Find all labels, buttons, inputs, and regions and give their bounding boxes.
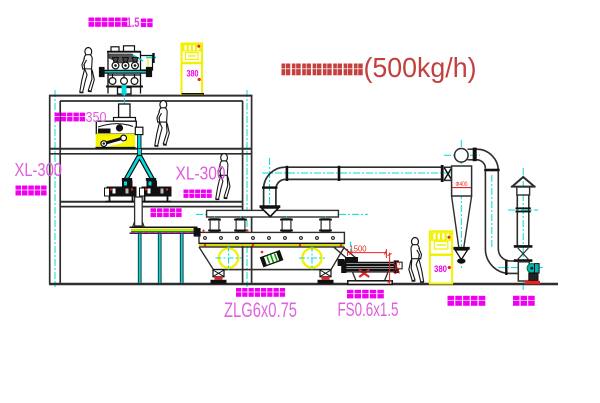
svg-text:XL-300: XL-300 [15, 160, 63, 180]
svg-text:XL-300: XL-300 [176, 163, 226, 184]
svg-text:350: 350 [86, 110, 107, 126]
svg-text:380: 380 [434, 264, 447, 275]
svg-text:FS0.6x1.5: FS0.6x1.5 [338, 300, 399, 321]
svg-text:545: 545 [392, 262, 401, 276]
svg-text:Φ400: Φ400 [456, 181, 468, 188]
svg-text:ZLG6x0.75: ZLG6x0.75 [224, 298, 297, 322]
svg-text:380: 380 [187, 69, 199, 80]
svg-text:1500: 1500 [350, 245, 368, 254]
svg-text:(500kg/h): (500kg/h) [364, 52, 477, 83]
svg-text:1.5: 1.5 [127, 15, 140, 30]
